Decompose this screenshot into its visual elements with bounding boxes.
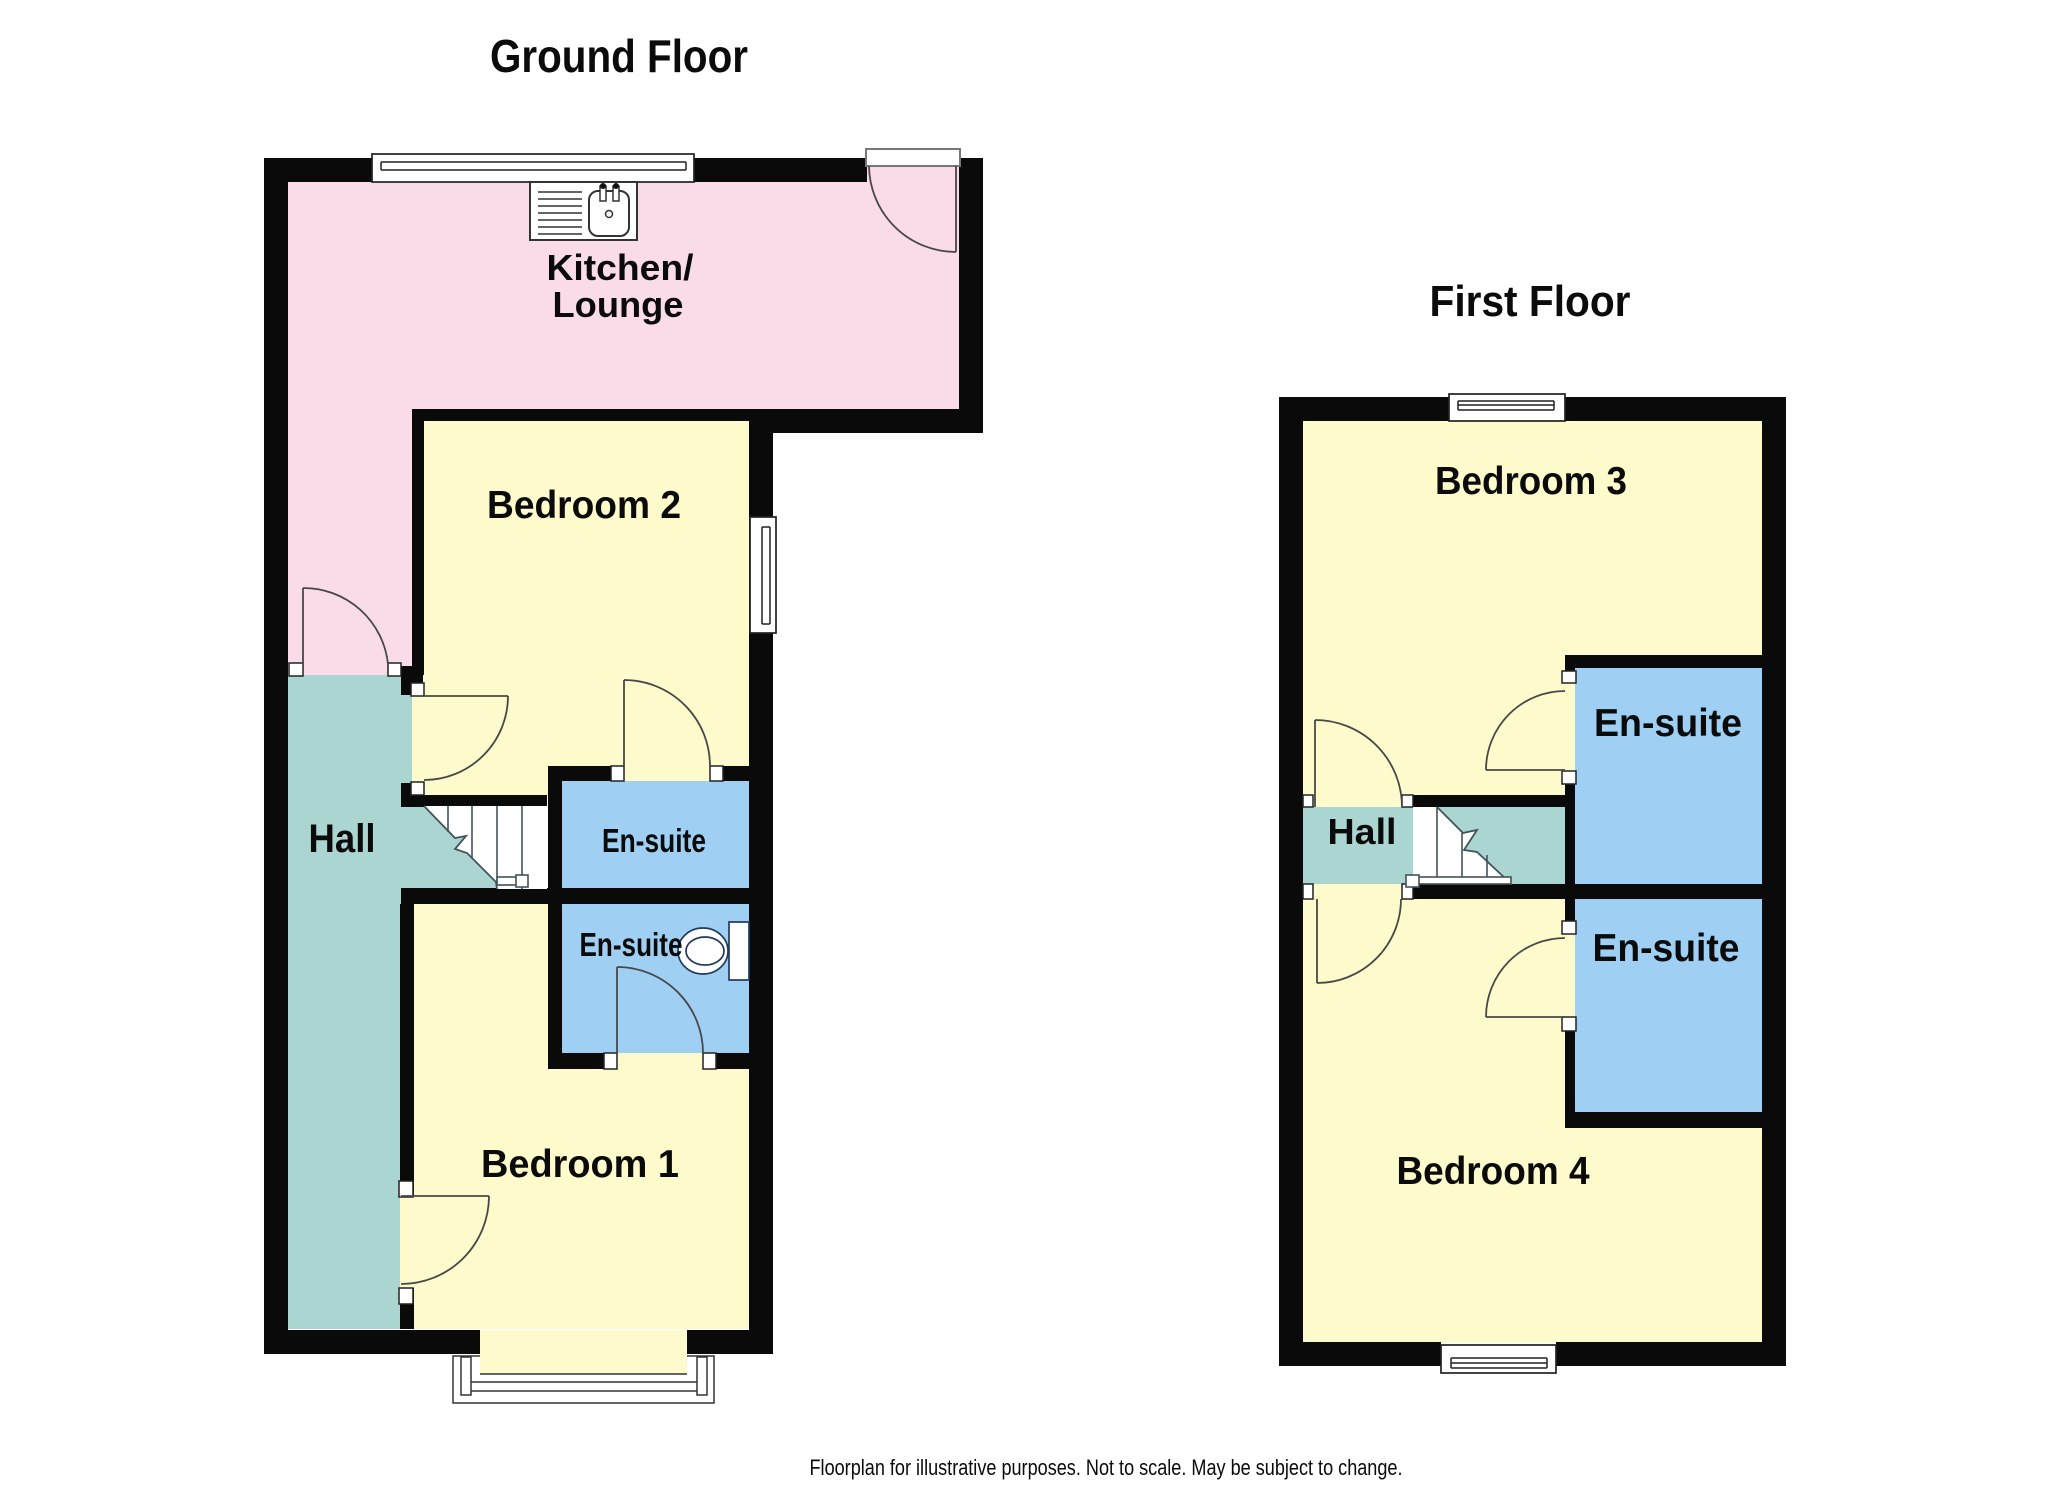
svg-text:Bedroom 1: Bedroom 1 xyxy=(481,1143,679,1186)
svg-text:Kitchen/: Kitchen/ xyxy=(547,247,694,288)
svg-text:En-suite: En-suite xyxy=(1593,927,1740,970)
svg-text:Hall: Hall xyxy=(309,817,376,861)
svg-text:First Floor: First Floor xyxy=(1430,277,1631,326)
svg-text:Lounge: Lounge xyxy=(553,284,684,325)
svg-text:En-suite: En-suite xyxy=(1594,702,1742,745)
svg-text:Ground Floor: Ground Floor xyxy=(490,30,748,82)
svg-text:En-suite: En-suite xyxy=(580,926,683,963)
svg-text:Bedroom 3: Bedroom 3 xyxy=(1435,460,1627,503)
svg-text:Bedroom 4: Bedroom 4 xyxy=(1397,1150,1590,1193)
svg-text:En-suite: En-suite xyxy=(602,822,706,859)
svg-text:Hall: Hall xyxy=(1328,811,1397,852)
svg-text:Floorplan for illustrative pur: Floorplan for illustrative purposes. Not… xyxy=(810,1455,1403,1480)
svg-text:Bedroom 2: Bedroom 2 xyxy=(487,484,681,527)
